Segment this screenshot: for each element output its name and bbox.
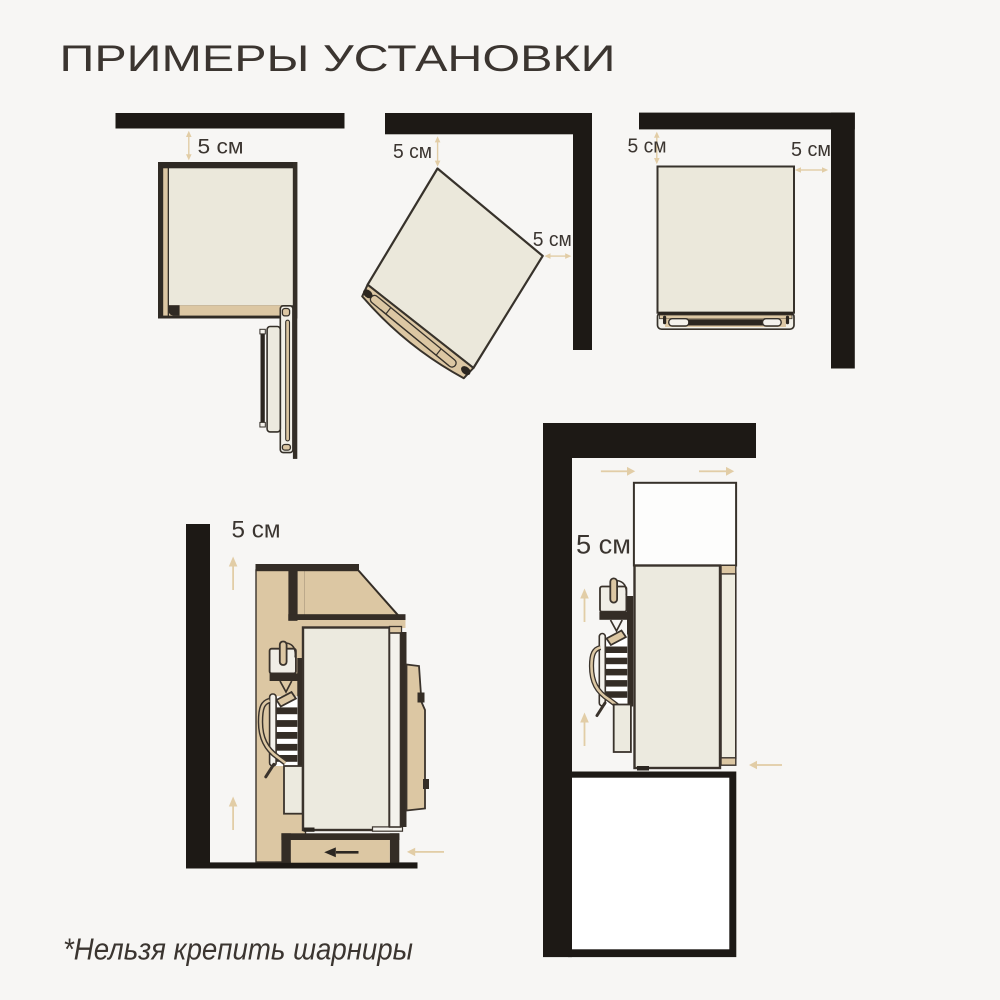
svg-text:5 см: 5 см <box>533 228 572 251</box>
svg-text:5 см: 5 см <box>628 136 667 158</box>
svg-text:5 см: 5 см <box>393 140 432 163</box>
svg-text:5 см: 5 см <box>232 516 281 543</box>
svg-text:5 см: 5 см <box>576 529 631 559</box>
svg-text:5 см: 5 см <box>198 135 244 159</box>
svg-text:*Нельзя крепить шарниры: *Нельзя крепить шарниры <box>63 932 413 967</box>
svg-text:ПРИМЕРЫ УСТАНОВКИ: ПРИМЕРЫ УСТАНОВКИ <box>60 38 616 79</box>
svg-text:5 см: 5 см <box>791 138 831 161</box>
